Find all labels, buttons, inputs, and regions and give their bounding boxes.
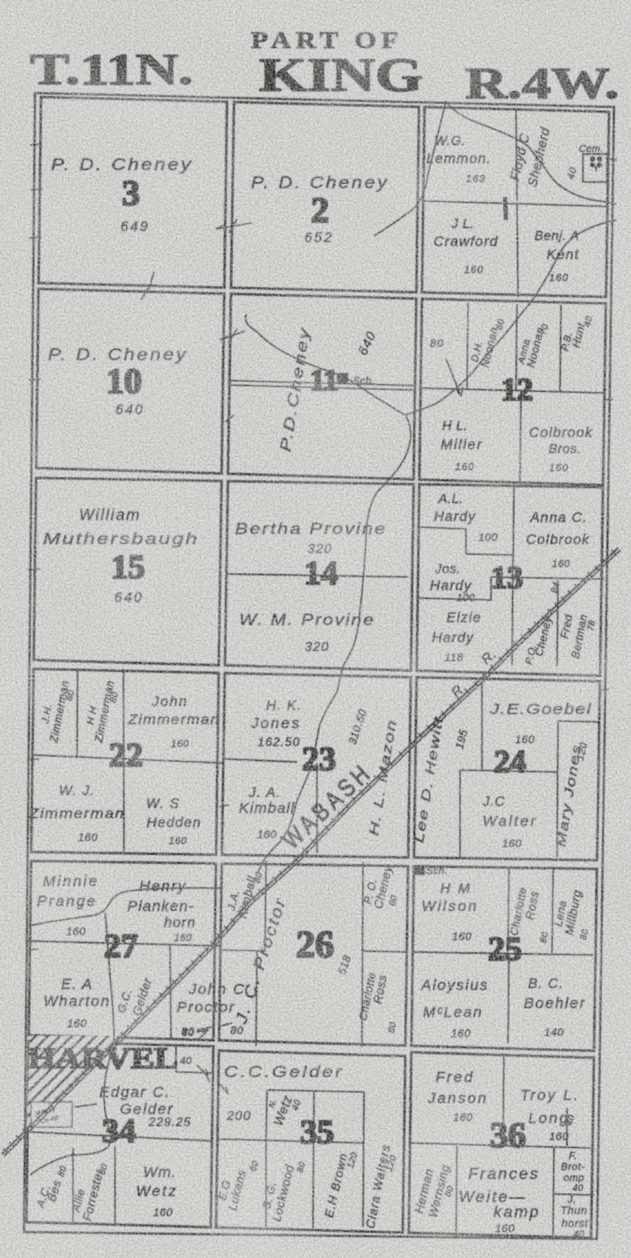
svg-text:Bertha Provine: Bertha Provine	[235, 521, 387, 538]
svg-text:Planken-: Planken-	[127, 898, 194, 915]
svg-text:Wilson: Wilson	[422, 898, 479, 915]
svg-text:320: 320	[308, 541, 333, 556]
svg-text:160: 160	[452, 931, 472, 943]
svg-text:Wm.: Wm.	[143, 1164, 177, 1181]
svg-text:13: 13	[491, 559, 523, 595]
svg-text:163: 163	[466, 174, 486, 185]
svg-text:Jones: Jones	[250, 715, 301, 732]
svg-text:160: 160	[502, 838, 522, 850]
svg-text:640: 640	[115, 401, 144, 417]
svg-text:160: 160	[66, 926, 86, 938]
svg-text:Jos.: Jos.	[434, 561, 461, 576]
svg-text:160: 160	[78, 832, 98, 844]
svg-text:Fred: Fred	[436, 1069, 475, 1086]
svg-text:2: 2	[311, 190, 329, 230]
svg-text:Zimmerman: Zimmerman	[28, 805, 125, 821]
svg-text:Sch.: Sch.	[426, 866, 448, 877]
svg-text:100: 100	[478, 532, 498, 544]
svg-text:Elzie: Elzie	[446, 609, 481, 625]
svg-text:22: 22	[109, 737, 143, 774]
svg-text:160: 160	[549, 273, 569, 284]
svg-text:160: 160	[552, 559, 570, 570]
svg-text:W. M. Provine: W. M. Provine	[239, 612, 375, 629]
svg-text:Crawford: Crawford	[434, 233, 499, 249]
svg-text:Benj. A: Benj. A	[535, 228, 580, 243]
svg-text:160: 160	[464, 265, 484, 276]
svg-text:26: 26	[296, 924, 334, 966]
svg-text:P. D. Cheney: P. D. Cheney	[51, 155, 193, 174]
svg-text:160: 160	[171, 739, 189, 750]
svg-text:Miller: Miller	[441, 436, 483, 452]
svg-text:Sch.: Sch.	[353, 376, 375, 387]
svg-text:200: 200	[226, 1108, 252, 1123]
svg-text:Walter: Walter	[482, 813, 537, 830]
svg-text:652: 652	[304, 229, 333, 245]
svg-text:35: 35	[300, 1114, 334, 1151]
svg-text:78: 78	[585, 619, 597, 632]
svg-text:162.50: 162.50	[258, 735, 301, 749]
svg-text:Hardy: Hardy	[432, 629, 474, 645]
svg-text:John: John	[151, 693, 188, 709]
svg-text:T.11N.: T.11N.	[30, 45, 193, 94]
svg-text:H. K.: H. K.	[266, 697, 302, 713]
svg-text:C.C.Gelder: C.C.Gelder	[224, 1064, 344, 1081]
svg-text:Prange: Prange	[37, 893, 97, 910]
svg-text:Hedden: Hedden	[146, 814, 201, 830]
svg-text:Hardy: Hardy	[430, 577, 472, 593]
svg-text:Thun: Thun	[560, 1205, 587, 1217]
svg-text:W. J.: W. J.	[59, 782, 95, 798]
svg-text:10: 10	[106, 361, 142, 401]
svg-text:W.G.: W.G.	[434, 133, 465, 148]
svg-text:36: 36	[490, 1115, 526, 1155]
svg-text:649: 649	[120, 218, 149, 234]
svg-text:Henry: Henry	[139, 878, 187, 895]
svg-text:640: 640	[114, 589, 143, 605]
svg-text:80: 80	[230, 1025, 244, 1037]
svg-text:Edgar C.: Edgar C.	[99, 1084, 170, 1101]
svg-text:Wetz: Wetz	[136, 1183, 178, 1200]
svg-text:Frances: Frances	[468, 1166, 540, 1183]
svg-text:Kimball: Kimball	[239, 800, 295, 817]
svg-text:A.L.: A.L.	[437, 491, 463, 506]
svg-text:Lemmon.: Lemmon.	[426, 150, 491, 166]
svg-text:KING: KING	[259, 49, 423, 102]
svg-text:MᶜLean: MᶜLean	[423, 1004, 483, 1021]
svg-text:F.: F.	[569, 1151, 578, 1162]
svg-text:E. A: E. A	[61, 976, 93, 993]
svg-text:H L.: H L.	[442, 418, 468, 433]
svg-text:80: 80	[430, 338, 444, 350]
svg-text:118: 118	[444, 652, 463, 664]
svg-text:320: 320	[305, 639, 330, 654]
svg-text:160: 160	[174, 933, 192, 944]
svg-text:Wharton: Wharton	[43, 993, 110, 1010]
svg-text:J.E.Goebel: J.E.Goebel	[489, 701, 592, 718]
svg-text:160: 160	[549, 1131, 569, 1143]
svg-text:160: 160	[67, 1018, 87, 1030]
svg-text:Muthersbaugh: Muthersbaugh	[43, 531, 199, 548]
svg-text:Aloysius: Aloysius	[420, 977, 489, 994]
svg-text:40: 40	[572, 1183, 583, 1193]
svg-text:23: 23	[302, 741, 336, 778]
svg-text:24: 24	[494, 743, 526, 779]
svg-text:160: 160	[495, 1223, 515, 1235]
svg-text:J.C: J.C	[482, 793, 506, 809]
svg-text:kamp: kamp	[493, 1204, 540, 1221]
svg-text:Hardy: Hardy	[434, 508, 476, 524]
svg-text:160: 160	[451, 1028, 471, 1040]
svg-text:12: 12	[501, 371, 533, 407]
svg-text:40: 40	[180, 1056, 192, 1067]
svg-text:W. S: W. S	[146, 795, 180, 811]
svg-text:Troy L.: Troy L.	[520, 1087, 580, 1104]
svg-text:J L.: J L.	[451, 216, 475, 231]
svg-text:Cem.: Cem.	[579, 144, 603, 155]
svg-text:Bros.: Bros.	[549, 441, 582, 456]
svg-text:Brot-: Brot-	[561, 1162, 585, 1173]
svg-text:R.4W.: R.4W.	[465, 59, 619, 108]
svg-text:14: 14	[304, 555, 338, 592]
svg-text:160: 160	[257, 829, 277, 841]
svg-text:15: 15	[111, 549, 145, 586]
svg-text:Anna C.: Anna C.	[529, 509, 588, 525]
svg-text:160: 160	[153, 1207, 173, 1219]
svg-text:80: 80	[182, 1028, 194, 1039]
svg-text:160: 160	[549, 463, 569, 474]
svg-text:Minnie: Minnie	[43, 873, 99, 890]
svg-text:160: 160	[455, 462, 475, 473]
svg-text:Janson: Janson	[427, 1090, 488, 1107]
svg-text:H M: H M	[440, 880, 472, 896]
svg-text:160: 160	[453, 1112, 473, 1124]
svg-text:229.25: 229.25	[148, 1115, 192, 1129]
svg-text:B. C.: B. C.	[528, 975, 564, 991]
svg-text:140: 140	[544, 1027, 564, 1039]
svg-text:William: William	[79, 507, 141, 524]
svg-text:Colbrook: Colbrook	[526, 531, 590, 547]
svg-text:40: 40	[573, 1229, 584, 1239]
svg-text:160: 160	[169, 836, 187, 847]
svg-text:J. A.: J. A.	[248, 784, 282, 800]
svg-text:100: 100	[457, 593, 475, 604]
svg-text:3: 3	[122, 173, 140, 213]
svg-text:Boehler: Boehler	[524, 995, 586, 1012]
svg-text:Proctor: Proctor	[177, 999, 236, 1016]
svg-text:horn: horn	[164, 914, 196, 930]
svg-text:Colbrook: Colbrook	[529, 424, 593, 440]
svg-text:Zimmerman: Zimmerman	[127, 711, 220, 727]
